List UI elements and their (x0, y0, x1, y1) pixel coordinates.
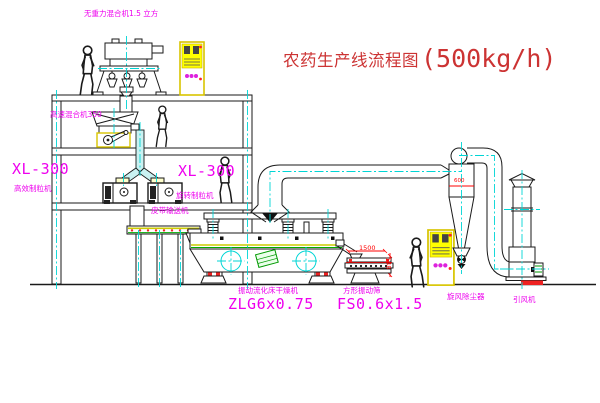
label-cyclone: 旋风除尘器 (447, 293, 485, 301)
worker-floor2 (156, 106, 167, 146)
dim-screen-height: 548 (385, 257, 392, 269)
label-granulator-left-name: 高效制粒机 (14, 185, 52, 193)
drawing-title: 农药生产线流程图 (500kg/h) (283, 44, 556, 73)
label-gravity-free-mixer: 无重力混合机1.5 立方 (84, 10, 158, 18)
title-text: 农药生产线流程图 (283, 47, 419, 71)
label-granulator-right-name: 旋转制粒机 (176, 192, 214, 200)
fluid-bed-dryer (186, 213, 362, 283)
control-cabinet-1 (180, 42, 204, 95)
granulator-discharge-chute (130, 206, 144, 227)
worker-screen (410, 238, 424, 287)
control-cabinet-2 (428, 230, 454, 285)
dim-cyclone-diameter: 600 (454, 179, 465, 185)
title-capacity: (500kg/h) (421, 44, 556, 73)
label-granulator-left-model: XL-300 (12, 162, 69, 177)
cad-process-flow-drawing: 农药生产线流程图 (500kg/h) 无重力混合机1.5 立方 高速混合机350… (0, 0, 600, 403)
granulator-left (103, 178, 137, 204)
induced-draft-fan (506, 174, 546, 286)
worker-roof (80, 46, 93, 94)
label-granulator-right-model: XL-300 (178, 164, 235, 179)
label-screen-name: 方形振动筛 (343, 287, 381, 295)
label-dryer-name: 振动流化床干燥机 (238, 287, 298, 295)
label-screen-model: FS0.6x1.5 (337, 297, 423, 312)
label-fan: 引风机 (513, 296, 536, 304)
dim-screen-length: 1500 (359, 245, 376, 252)
label-high-speed-mixer: 高速混合机350 (50, 111, 102, 119)
label-belt-conveyor: 皮带输送机 (151, 207, 189, 215)
label-dryer-model: ZLG6x0.75 (228, 297, 314, 312)
